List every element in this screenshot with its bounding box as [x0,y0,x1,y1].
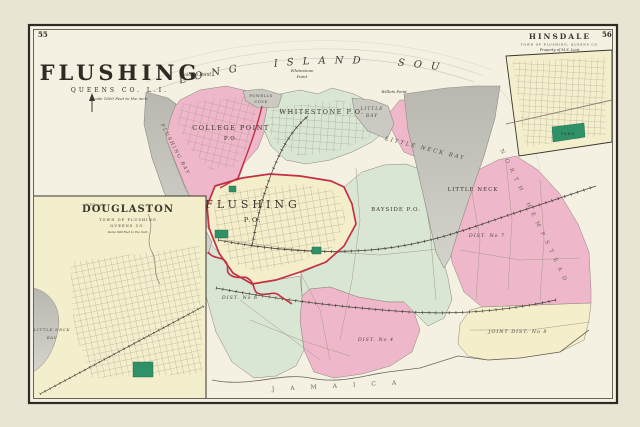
district-7-label-real: DIST. No 7 [468,233,505,239]
whitestone-po-label: WHITESTONE P.O. [279,108,364,116]
hinsdale-park-label: PARK [561,132,575,136]
page-number-left: 55 [38,30,48,39]
douglaston-bay-label-1: LITTLE NECK [33,327,71,332]
little-neck-label: LITTLE NECK [448,187,499,193]
map-title: FLUSHING [40,60,201,85]
powells-cove-label-1: POWELLS [249,93,273,98]
whitestone-point-label-1: Whitestone [291,68,315,73]
douglaston-owner-label: W.P.Douglas [86,203,107,207]
district-6-label: DIST. No 6 [221,295,258,301]
map-title-region: QUEENS CO. L.I. [71,87,169,94]
douglaston-bay-label-2: BAY [46,335,57,340]
little-bay-label-2: BAY [365,113,378,119]
flushing-po-label-1: FLUSHING [205,198,301,211]
whitestone-point-label-2: Point [296,74,308,79]
powells-cove-label-2: COVE [254,99,267,104]
douglaston-scale: Scale 600 Feet to the inch. [108,230,149,234]
douglaston-inset: DOUGLASTON TOWN OF FLUSHING QUEENS CO. S… [33,196,206,400]
college-point-po-label-1: COLLEGE POINT [192,124,269,132]
hinsdale-sub1: TOWN OF FLUSHING, QUEENS CO. [521,43,600,47]
atlas-page: LONG ISLAND SOUND College Point Whitesto… [0,0,640,427]
joint-district-8-label: JOINT DIST. No 8 [488,329,548,335]
willets-point-label: Willets Point [381,89,407,94]
page-number-right: 56 [602,30,612,39]
hinsdale-title: HINSDALE [529,32,591,41]
college-point-po-label-2: P.O. [224,136,238,142]
bayside-po-label: BAYSIDE P.O. [371,207,421,213]
flushing-po-label-2: P.O. [244,216,262,224]
douglaston-park [133,362,153,377]
hinsdale-sub2: Property of M.S. Lent. [539,48,581,52]
flushing-map-svg: LONG ISLAND SOUND College Point Whitesto… [0,0,640,427]
map-body: LONG ISLAND SOUND College Point Whitesto… [0,0,612,400]
district-4-label: DIST. No 4 [357,337,394,343]
douglaston-sub2: QUEENS CO. [110,224,145,228]
douglaston-street-grid [70,246,202,378]
map-title-scale: Scale 1600 Feet to the inch. [92,96,149,101]
douglaston-sub1: TOWN OF FLUSHING [99,218,157,222]
